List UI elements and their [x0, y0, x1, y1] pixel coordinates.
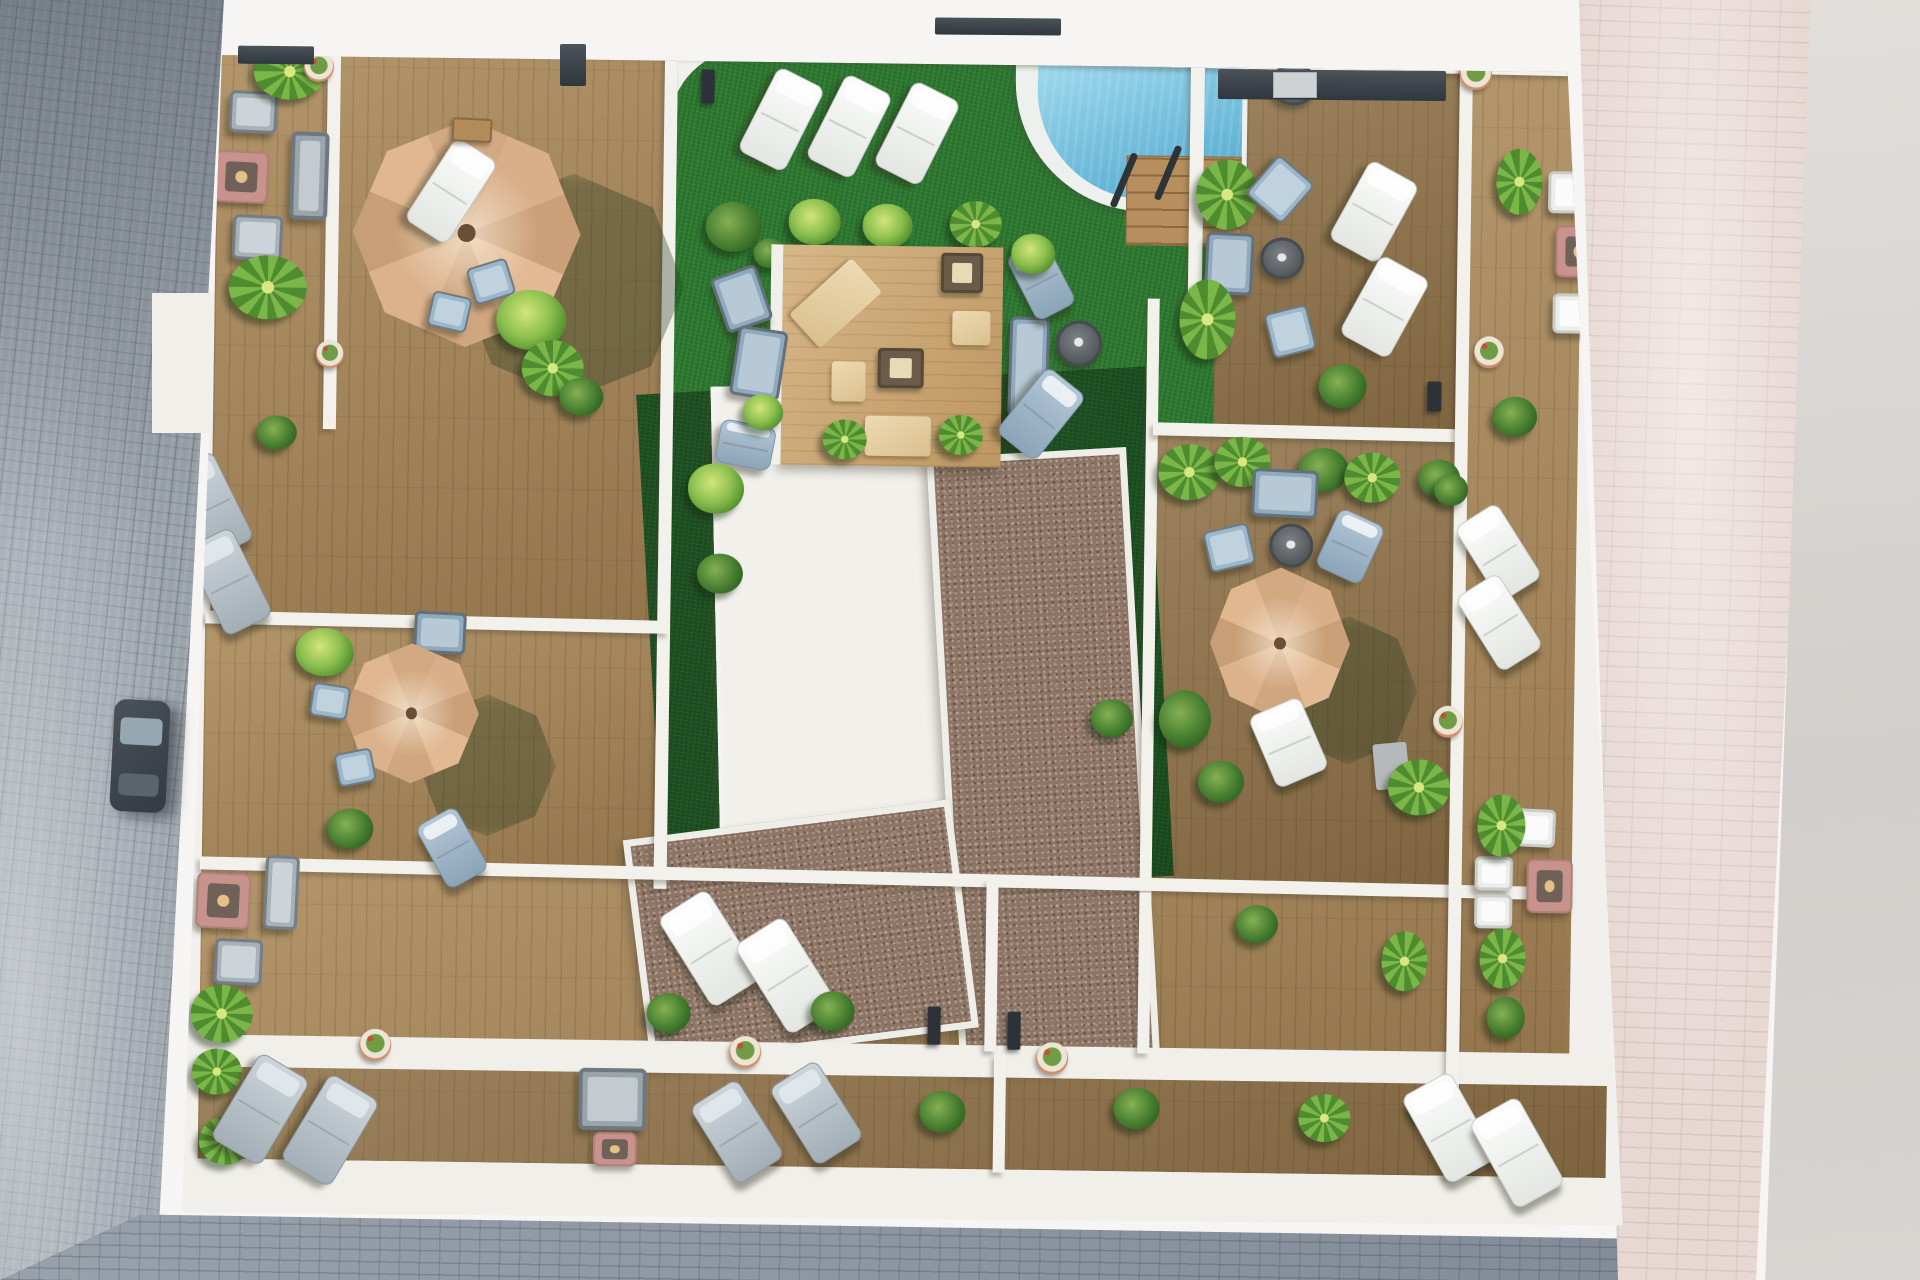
- sofa: [578, 1068, 647, 1131]
- armchair: [1475, 856, 1513, 891]
- roof-access-block: [1273, 72, 1317, 98]
- building-footprint: [148, 40, 1633, 1235]
- fire-table: [593, 1132, 637, 1167]
- light-post: [701, 69, 714, 103]
- fire-table: [213, 150, 269, 205]
- roof-edge-bar: [1218, 69, 1446, 101]
- sofa: [1251, 468, 1319, 519]
- lounge-pad: [952, 311, 990, 346]
- light-post: [927, 1007, 941, 1045]
- fire-table: [195, 871, 252, 930]
- roof-edge-bar: [238, 46, 314, 65]
- chimney: [560, 44, 586, 86]
- sofa: [289, 131, 330, 220]
- rooftop-plan-render: [0, 0, 1920, 1280]
- armchair: [1474, 894, 1512, 929]
- armchair: [213, 938, 263, 986]
- lounge-pad: [831, 361, 866, 401]
- shrub: [688, 463, 745, 514]
- lounge-pad: [865, 416, 932, 457]
- sofa: [729, 325, 789, 402]
- wall-rowA-divider: [984, 879, 998, 1051]
- shrub: [1011, 234, 1056, 275]
- chair: [309, 681, 352, 720]
- pergola-table: [877, 348, 924, 389]
- armchair: [263, 855, 301, 931]
- shrub: [295, 628, 354, 677]
- pergola-table: [941, 253, 984, 294]
- armchair: [1548, 171, 1589, 214]
- shrub: [862, 204, 913, 249]
- light-post: [1007, 1012, 1021, 1050]
- shrub: [743, 394, 783, 431]
- light-post: [1427, 381, 1441, 411]
- parked-car: [109, 699, 171, 814]
- shrub: [559, 377, 604, 416]
- roof-edge-bar: [935, 17, 1061, 35]
- armchair: [1552, 293, 1593, 334]
- fire-table: [1526, 859, 1573, 914]
- wall-rowA-divider: [1137, 893, 1151, 1054]
- armchair: [228, 90, 278, 134]
- wall-rowB-divider: [993, 1054, 1007, 1172]
- balcony-ledge: [152, 293, 214, 433]
- shrub: [788, 199, 841, 246]
- building-interior: [140, 30, 1642, 1246]
- side-table: [451, 117, 492, 143]
- chair: [333, 747, 377, 788]
- armchair: [231, 214, 283, 261]
